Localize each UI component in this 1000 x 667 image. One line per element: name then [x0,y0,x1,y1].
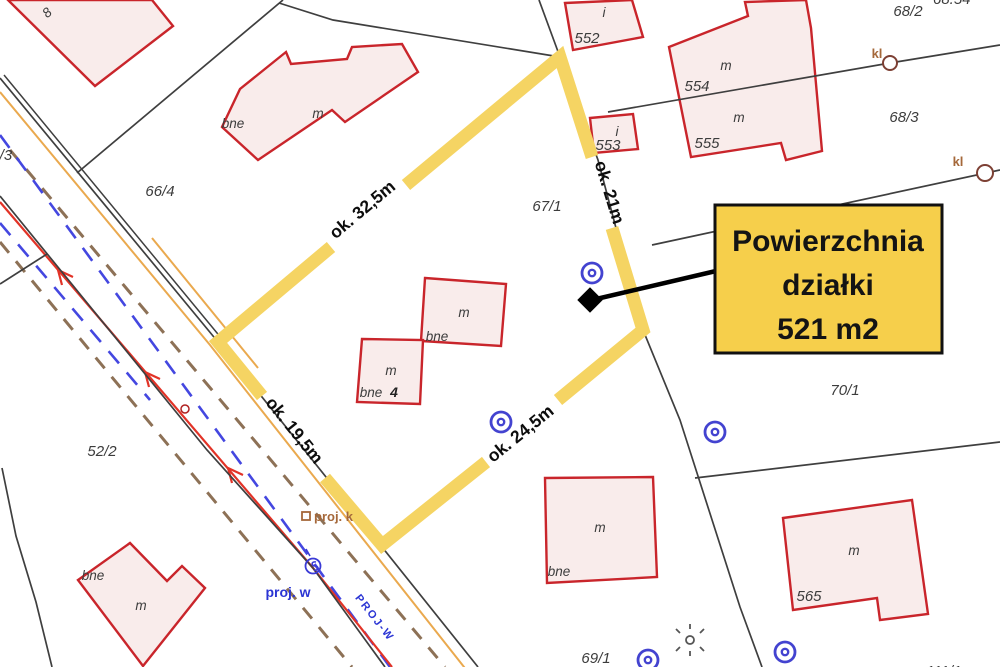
partial-label-top-right: 68.54 [933,0,971,8]
parcel-69-1-label: 69/1 [581,650,610,667]
kl-label-2: kl [953,154,964,169]
map-canvas: Powierzchnia działki 521 m2 ok. 32,5m ok… [0,0,1000,667]
highlight-segment-apex [406,57,592,185]
manhole-icon-4 [638,650,658,667]
dimension-label-right: ok. 21m [591,158,629,226]
parcel-52-2-label: 52/2 [87,443,117,460]
cadastral-map: Powierzchnia działki 521 m2 ok. 32,5m ok… [0,0,1000,667]
boundary-70-1-south [695,442,1000,478]
building-4-label: 4 [389,384,398,400]
kl-point-icon-2 [977,165,993,181]
dimension-label-top: ok. 32,5m [325,176,399,243]
manhole-icon-1 [582,263,602,283]
building-69-1-m-label: m [594,520,605,535]
callout-line-3: 521 m2 [777,313,879,346]
manhole-icon-3 [705,422,725,442]
building-south-bne-label: bne [360,385,383,400]
building-69-1-bne-label: bne [548,564,571,579]
building-66-4-bne-label: bne [222,116,245,131]
road-brown-dashed-line-a [10,150,445,667]
road-orange-line-outer [152,238,258,368]
building-565-m-label: m [848,543,859,558]
building-555-m-label: m [733,110,744,125]
kl-point-icon-1 [883,56,897,70]
boundary-66-4-67-1 [279,3,560,57]
proj-k-point-icon [302,512,310,520]
highlight-segment-east [558,228,643,400]
dimension-label-left: ok. 19,5m [262,393,328,468]
callout-leader-line [592,271,716,300]
kl-label-1: kl [872,46,883,61]
building-8-outline [8,0,173,86]
proj-w-label: proj. w [265,584,310,600]
callout-line-2: działki [782,269,874,302]
parcel-68-3-label: 68/3 [889,109,919,126]
lamp-icon [676,624,704,656]
boundary-67-1-top [539,0,560,57]
building-north-bne-label: bne [426,329,449,344]
parcel-70-1-label: 70/1 [830,382,859,399]
parcel-67-1-label: 67/1 [532,198,561,215]
building-565-label: 565 [796,588,822,605]
parcel-66-4-label: 66/4 [145,183,174,200]
partial-label-left-edge: 52/3 [0,147,13,164]
building-52-2-bne-label: bne [82,568,105,583]
building-554-m-label: m [720,58,731,73]
road-blue-dashed-line-b [0,223,150,400]
highlight-segment-south [325,462,486,545]
building-66-4-outline [222,44,418,160]
building-52-2-m-label: m [135,598,146,613]
building-552-label: 552 [574,30,600,47]
callout-line-1: Powierzchnia [732,225,924,258]
proj-k-label: proj. k [314,509,354,524]
building-66-4-m-label: m [312,106,323,121]
manhole-icon-5 [775,642,795,662]
building-553-label: 553 [595,137,621,154]
dimension-label-bottom: ok. 24,5m [483,400,558,466]
boundary-52-2-south [2,468,52,667]
building-554-label: 554 [684,78,709,95]
road-right-edge-double-line [4,75,222,339]
manhole-icon-2 [491,412,511,432]
highlight-segment-west [218,247,331,396]
callout-anchor-diamond-icon [577,287,602,312]
building-south-m-label: m [385,363,396,378]
building-555-label: 555 [694,135,720,152]
road-survey-point-icon [181,405,189,413]
parcel-68-2-label: 68/2 [893,3,923,20]
building-north-m-label: m [458,305,469,320]
partial-label-bottom-right: 111/1 [926,663,961,667]
